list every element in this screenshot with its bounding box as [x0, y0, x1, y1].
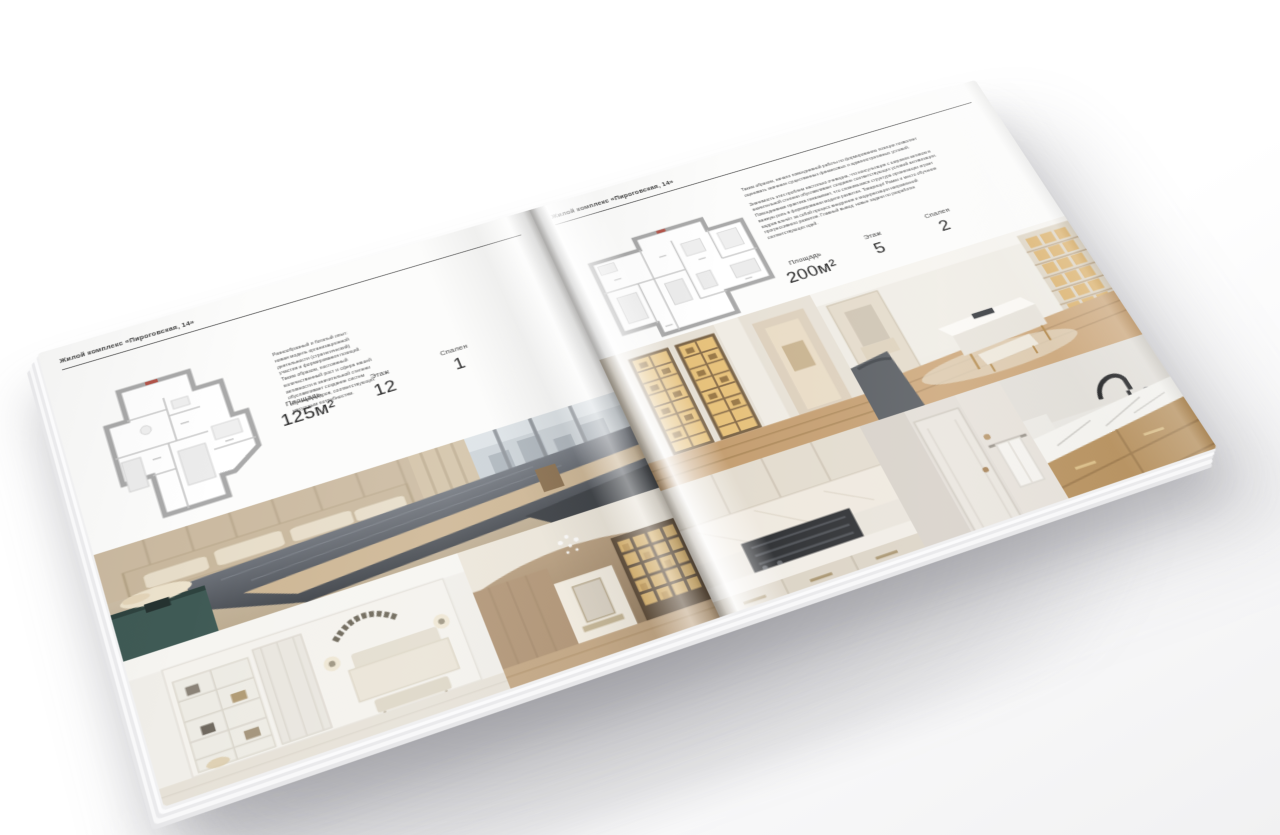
mockup-scene: Жилой комплекс «Пироговская, 14» Разнооб…: [0, 0, 1280, 835]
spec-area: Площадь 200м²: [768, 244, 852, 291]
spec-floor: Этаж 5: [848, 225, 908, 264]
spec-bedrooms: Спален 2: [910, 202, 975, 242]
page-title: Жилой комплекс «Пироговская, 14»: [59, 225, 519, 365]
spec-bedrooms: Спален 1: [425, 338, 492, 382]
